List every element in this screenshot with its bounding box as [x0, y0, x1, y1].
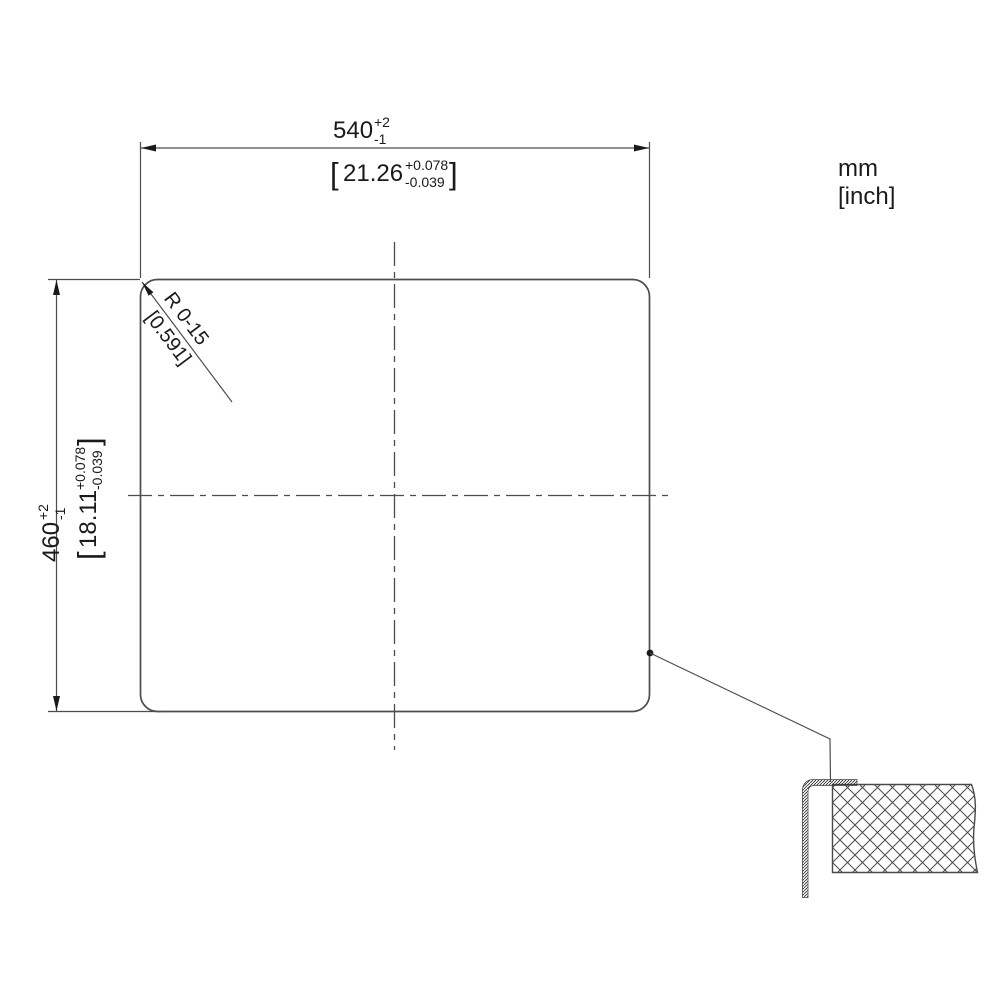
width-tol-minus: -1 — [374, 131, 387, 147]
units-legend: mm [inch] — [838, 155, 895, 210]
arrowhead-left — [141, 145, 156, 152]
arrowhead-top — [53, 280, 60, 295]
width-inch-tol-minus: -0.039 — [405, 174, 445, 190]
section-leader — [647, 650, 831, 782]
height-inch-bracket-close: ] — [71, 437, 106, 446]
drawing-canvas: 540 +2 -1 [ 21.26 +0.078 -0.039 ] 460 +2… — [0, 0, 1000, 1000]
height-value-mm: 460 — [38, 522, 65, 562]
radius-leader-line — [142, 282, 232, 402]
height-dimension-text: 460 +2 -1 [ 18.11 +0.078 -0.039 ] — [35, 437, 106, 562]
height-inch-bracket-open: [ — [71, 551, 106, 560]
width-value-mm: 540 — [333, 117, 373, 144]
technical-drawing: 540 +2 -1 [ 21.26 +0.078 -0.039 ] 460 +2… — [0, 0, 1000, 1000]
height-value-inch: 18.11 — [75, 490, 102, 548]
centerlines — [128, 242, 668, 750]
radius-arrowhead — [142, 282, 153, 296]
arrowhead-bottom — [53, 696, 60, 711]
width-value-inch: 21.26 — [343, 160, 403, 187]
arrowhead-right — [634, 145, 649, 152]
countertop-crosshatch-block — [833, 785, 978, 873]
width-inch-bracket-open: [ — [330, 156, 339, 191]
height-tol-minus: -1 — [52, 507, 68, 520]
units-inch-label: [inch] — [838, 183, 895, 210]
height-inch-tol-minus: -0.039 — [89, 450, 105, 490]
corner-radius-callout: R 0-15 [0.591] — [138, 282, 232, 402]
height-tol-plus: +2 — [35, 504, 51, 520]
countertop-section — [803, 780, 978, 898]
width-tol-plus: +2 — [374, 114, 390, 130]
width-inch-bracket-close: ] — [449, 156, 458, 191]
height-inch-tol-plus: +0.078 — [72, 447, 88, 490]
units-mm-label: mm — [838, 155, 878, 182]
width-inch-tol-plus: +0.078 — [405, 157, 448, 173]
leader-polyline — [650, 653, 831, 782]
